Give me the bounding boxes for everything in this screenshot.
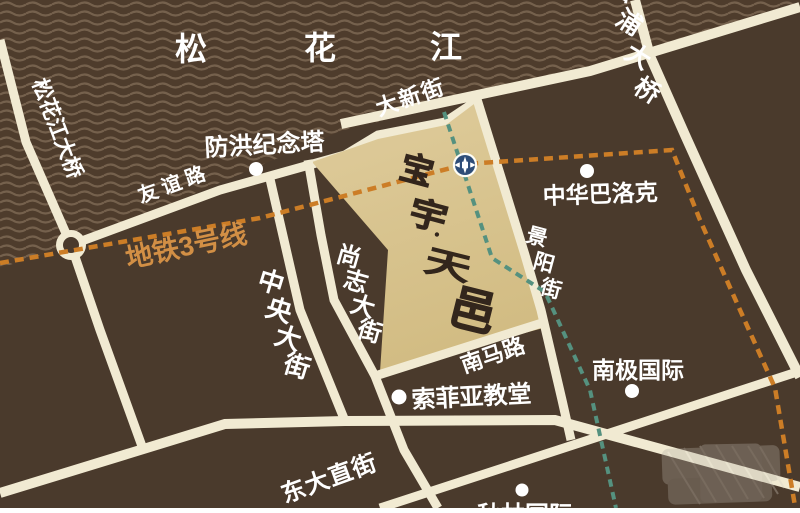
svg-text:秋林国际: 秋林国际 [477,502,573,508]
svg-text:南极国际: 南极国际 [592,357,684,383]
svg-text:花: 花 [304,30,336,66]
svg-text:江: 江 [430,29,462,65]
svg-text:中华巴洛克: 中华巴洛克 [542,179,658,209]
svg-text:松: 松 [175,31,207,67]
